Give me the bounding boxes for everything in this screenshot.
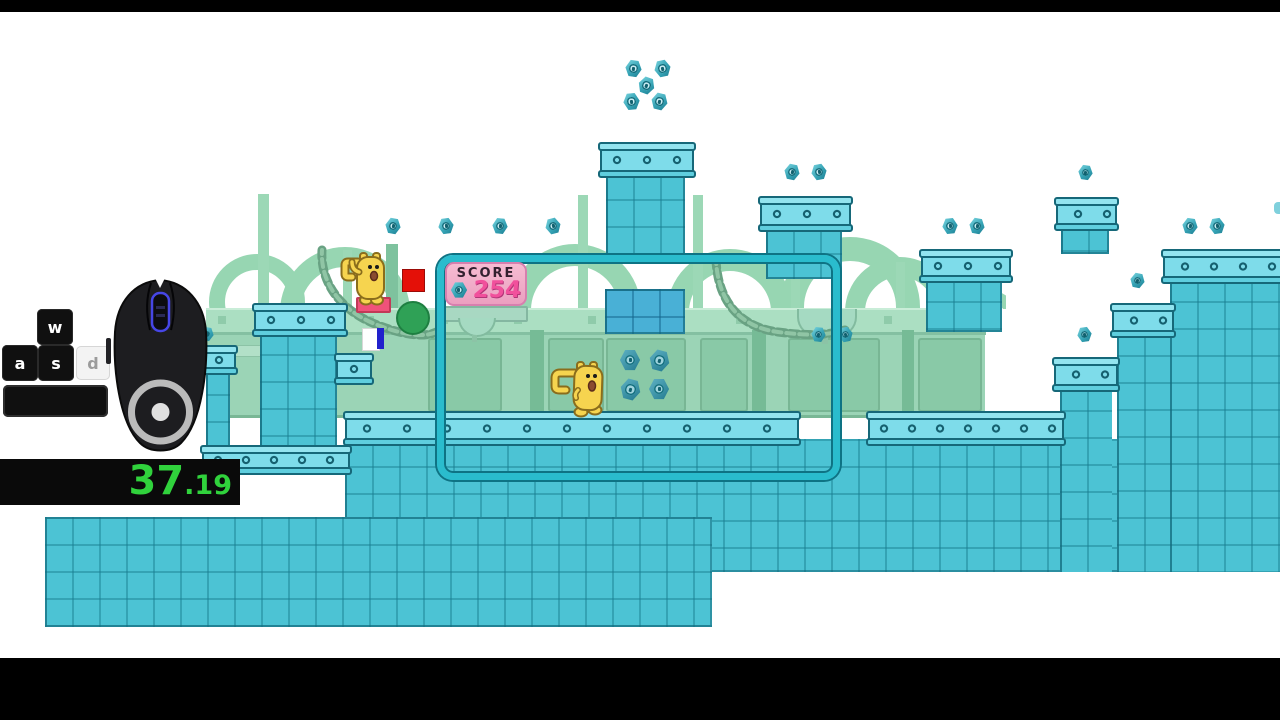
red-button[interactable] <box>402 269 425 292</box>
hex-bolt <box>623 58 642 77</box>
score-value: 254 <box>473 281 523 299</box>
platform-cap <box>760 200 851 228</box>
platform-cap <box>1056 201 1117 227</box>
ground-edge-cap <box>868 415 1064 442</box>
platform-block <box>606 172 685 257</box>
speedrun-timer: 37 .19 <box>0 459 240 505</box>
key-w: w <box>37 309 73 345</box>
hex-bolt <box>1208 217 1226 235</box>
score-panel: SCORE 254 <box>445 262 527 306</box>
wall-pillar <box>902 330 914 415</box>
hex-bolt <box>649 91 670 112</box>
key-spacebar <box>3 385 108 417</box>
gaming-mouse-icon <box>104 278 217 452</box>
stair-block <box>1117 328 1170 572</box>
hex-bolt <box>1077 164 1094 181</box>
bottom-letterbox-bar <box>0 658 1280 720</box>
timer-seconds: 37 <box>128 459 184 503</box>
hex-bolt <box>783 163 802 182</box>
wall-panel <box>918 338 982 412</box>
platform-cap <box>1112 307 1174 334</box>
top-letterbox-bar <box>0 0 1280 12</box>
door-blue-edge <box>377 328 384 349</box>
key-s: s <box>38 345 74 381</box>
hex-bolt-icon <box>450 282 467 298</box>
lower-floor <box>45 517 712 627</box>
hex-bolt <box>1076 326 1093 343</box>
hex-bolt <box>622 92 641 111</box>
platform-cap <box>1163 253 1280 280</box>
wubbzy-sprite-standing <box>336 250 392 308</box>
partial-bolt-edge <box>1274 202 1280 214</box>
stair-block <box>1170 274 1280 572</box>
hex-bolt <box>1128 271 1146 289</box>
key-a: a <box>2 345 38 381</box>
hex-bolt <box>635 74 657 96</box>
platform-block <box>260 327 337 454</box>
hex-bolt <box>652 58 672 78</box>
stair-block <box>1060 383 1112 572</box>
platform-cap <box>600 146 694 174</box>
hex-bolt <box>1181 217 1199 235</box>
platform-cap <box>921 253 1011 279</box>
hex-bolt <box>810 163 829 182</box>
timer-fraction: .19 <box>184 470 232 501</box>
green-ball <box>397 302 429 334</box>
side-bracket <box>336 357 372 381</box>
mouse-scroll-wheel <box>152 293 169 331</box>
platform-cap <box>1054 361 1118 388</box>
platform-cap <box>254 307 346 333</box>
